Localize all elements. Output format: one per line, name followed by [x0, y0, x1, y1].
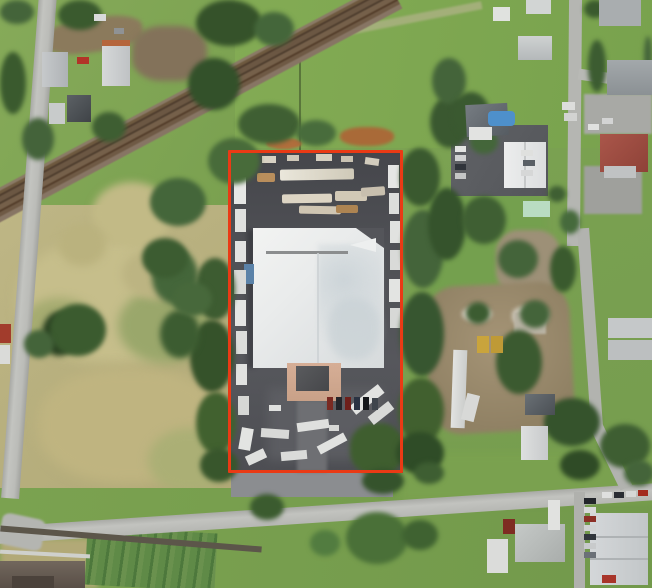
tree-nw-2 — [150, 178, 206, 226]
garage-right-2 — [608, 340, 652, 360]
tree-nw-4 — [172, 282, 212, 316]
car-brlot-3 — [584, 516, 596, 522]
car-brtop-3 — [626, 491, 636, 497]
car-parking-r1 — [455, 146, 466, 152]
garage-right-1 — [608, 318, 652, 338]
swimming-pool — [488, 111, 515, 126]
car-brlot-7 — [584, 552, 596, 558]
car-parking-r5 — [521, 150, 533, 156]
car-brtop-4 — [638, 490, 648, 496]
tree-topleft-4 — [254, 12, 294, 46]
tree-mint-yard — [548, 186, 566, 202]
tree-bc-2 — [402, 520, 438, 550]
aerial-satellite-photo — [0, 0, 652, 588]
house-gray-tr1 — [599, 0, 641, 26]
industrial-br-seam-2 — [590, 558, 648, 560]
property-boundary — [228, 150, 403, 473]
tree-east-band-3 — [400, 292, 444, 376]
car-redhouse-2 — [602, 118, 613, 124]
car-brlot-1 — [584, 498, 596, 504]
car-redhouse-1 — [588, 124, 599, 130]
red-truck-tl — [77, 57, 89, 64]
tree-rmid-5 — [498, 240, 538, 278]
junk-tl-1 — [94, 14, 106, 21]
tree-bc-1 — [346, 512, 408, 564]
junk-tl-2 — [114, 28, 124, 34]
tree-rail-3 — [296, 120, 336, 146]
rv-white-bc — [548, 500, 560, 530]
tree-rmid-7 — [560, 210, 580, 234]
tree-tr-3 — [588, 40, 606, 92]
tree-topleft-5 — [92, 112, 126, 142]
car-parking-r3 — [455, 164, 466, 170]
tree-west-band-6 — [160, 310, 200, 358]
tree-se-3 — [560, 450, 600, 480]
car-red-br — [602, 575, 616, 583]
car-brlot-5 — [584, 534, 596, 540]
barn-red-left-edge — [0, 324, 11, 343]
building-bottom-left-wing — [12, 576, 54, 588]
car-parking-r7 — [521, 170, 533, 176]
tree-rail-1 — [188, 58, 240, 110]
tree-rmid-3 — [428, 188, 466, 260]
mint-building — [523, 201, 550, 217]
tree-bc-4 — [250, 494, 284, 520]
knoll-2 — [58, 224, 106, 266]
tree-rmid-6 — [550, 246, 576, 292]
dirt-orange-2 — [340, 127, 394, 146]
tree-topleft-7 — [22, 118, 54, 160]
industrial-br-seam-1 — [590, 536, 648, 538]
tree-rail-2 — [238, 104, 300, 144]
building-tall-tl — [102, 42, 130, 86]
tree-field-1 — [50, 304, 106, 356]
tree-se-4 — [624, 460, 652, 486]
house-gray-tc — [518, 36, 552, 60]
truck-roadside-2 — [564, 113, 577, 121]
house-top-center — [526, 0, 551, 14]
tree-rmid-4 — [462, 196, 506, 244]
car-brtop-1 — [602, 492, 612, 498]
tree-gravel-2 — [520, 300, 550, 328]
shed-top-center — [493, 7, 510, 21]
house-small-tl — [49, 103, 65, 124]
car-parking-r4 — [455, 173, 466, 179]
tree-topleft-3 — [196, 0, 262, 46]
yellow-truck-2 — [491, 336, 503, 353]
tree-nw-3 — [142, 238, 188, 278]
truck-roadside-1 — [562, 102, 575, 110]
car-brlot-2 — [584, 507, 596, 513]
industrial-building-br — [590, 513, 648, 585]
car-brlot-4 — [584, 525, 596, 531]
building-tall-tl-roofline — [102, 40, 130, 46]
truck-white-left-edge — [0, 345, 10, 364]
yellow-truck-1 — [477, 336, 489, 353]
tree-bc-3 — [310, 530, 340, 556]
tree-below-boundary-2 — [414, 462, 444, 484]
house-dark-tl — [67, 95, 91, 122]
shed-bc — [487, 539, 508, 573]
car-parking-r6 — [523, 160, 535, 166]
tree-field-2 — [24, 330, 54, 358]
car-parking-r2 — [455, 155, 466, 161]
dark-house-br — [525, 394, 555, 415]
car-brtop-2 — [614, 492, 624, 498]
tree-topleft-2 — [0, 0, 34, 24]
car-brlot-6 — [584, 543, 596, 549]
house-gable-tl — [42, 52, 68, 87]
tree-gravel-3 — [466, 302, 490, 324]
truck-red-bc — [503, 519, 515, 534]
white-tarp — [469, 127, 492, 140]
white-house-br — [521, 426, 548, 460]
red-house-porch — [604, 166, 636, 178]
tree-topleft-6 — [0, 52, 26, 114]
house-gray-tr2 — [607, 60, 652, 95]
